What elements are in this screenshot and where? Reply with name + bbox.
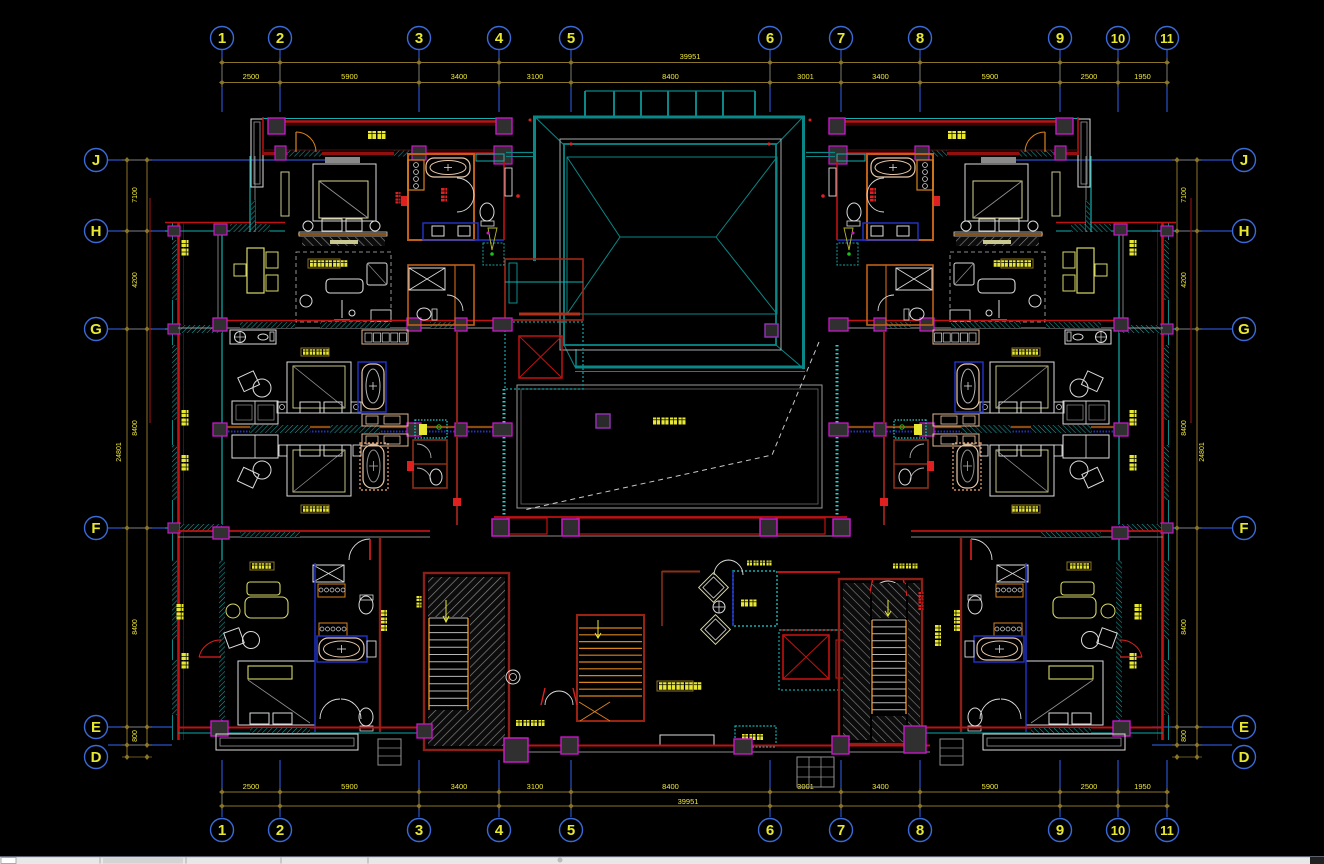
svg-text:3: 3 [415,822,423,839]
svg-text:8400: 8400 [1181,619,1188,635]
svg-text:H: H [91,223,102,240]
svg-text:5: 5 [567,30,575,47]
svg-text:J: J [1240,152,1248,169]
svg-text:2500: 2500 [243,72,260,81]
svg-text:11: 11 [1160,823,1174,838]
svg-text:5900: 5900 [341,72,358,81]
svg-text:4200: 4200 [132,272,139,288]
svg-text:4: 4 [495,30,504,47]
svg-text:8: 8 [916,822,924,839]
svg-text:E: E [1239,719,1249,736]
svg-text:7100: 7100 [132,187,139,203]
svg-text:10: 10 [1111,823,1125,838]
svg-text:7100: 7100 [1181,187,1188,203]
svg-text:2500: 2500 [1081,782,1098,791]
svg-text:3400: 3400 [451,782,468,791]
svg-text:5900: 5900 [982,782,999,791]
svg-text:9: 9 [1056,30,1064,47]
svg-text:2500: 2500 [243,782,260,791]
svg-text:2: 2 [276,30,284,47]
svg-text:9: 9 [1056,822,1064,839]
svg-text:24801: 24801 [1199,442,1206,462]
svg-text:1: 1 [218,30,226,47]
svg-text:1950: 1950 [1134,72,1151,81]
svg-text:39951: 39951 [678,797,699,806]
svg-text:3100: 3100 [527,782,544,791]
svg-text:5900: 5900 [341,782,358,791]
svg-text:8400: 8400 [132,619,139,635]
svg-text:3400: 3400 [451,72,468,81]
svg-text:4200: 4200 [1181,272,1188,288]
svg-text:2: 2 [276,822,284,839]
svg-text:D: D [1239,749,1250,766]
svg-text:800: 800 [132,730,139,742]
svg-text:2500: 2500 [1081,72,1098,81]
svg-text:E: E [91,719,101,736]
svg-text:7: 7 [837,30,845,47]
svg-text:8400: 8400 [132,420,139,436]
svg-text:24801: 24801 [116,442,123,462]
svg-text:D: D [91,749,102,766]
svg-text:1: 1 [218,822,226,839]
svg-text:8: 8 [916,30,924,47]
svg-text:G: G [90,321,102,338]
svg-text:F: F [1239,520,1248,537]
svg-text:10: 10 [1111,31,1125,46]
svg-text:F: F [91,520,100,537]
svg-text:4: 4 [495,822,504,839]
svg-text:3400: 3400 [872,782,889,791]
svg-text:39951: 39951 [680,52,701,61]
svg-text:800: 800 [1181,730,1188,742]
svg-text:J: J [92,152,100,169]
svg-text:8400: 8400 [662,782,679,791]
svg-text:3: 3 [415,30,423,47]
svg-text:6: 6 [766,30,774,47]
svg-text:H: H [1239,223,1250,240]
svg-text:7: 7 [837,822,845,839]
svg-text:G: G [1238,321,1250,338]
svg-text:8400: 8400 [1181,420,1188,436]
svg-text:3001: 3001 [797,72,814,81]
svg-text:8400: 8400 [662,72,679,81]
svg-text:5: 5 [567,822,575,839]
svg-text:5900: 5900 [982,72,999,81]
svg-text:1950: 1950 [1134,782,1151,791]
svg-text:3400: 3400 [872,72,889,81]
svg-text:11: 11 [1160,31,1174,46]
svg-text:3100: 3100 [527,72,544,81]
svg-text:6: 6 [766,822,774,839]
